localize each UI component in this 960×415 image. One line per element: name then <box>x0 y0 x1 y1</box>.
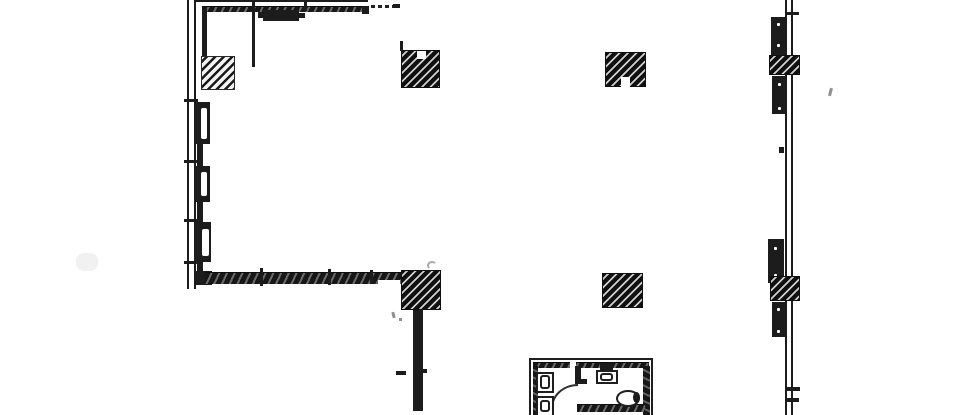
top-wall-dash-end <box>393 4 400 8</box>
sink-basin <box>600 373 613 381</box>
right-pier-3-dot-a <box>774 247 777 250</box>
left-wall-tick-2 <box>184 160 198 163</box>
column-bottom-left <box>401 270 441 310</box>
right-column-1 <box>769 55 800 75</box>
stray-mark-2 <box>399 318 402 321</box>
right-wall-mid-tick <box>779 147 784 153</box>
smudge-left <box>76 253 98 271</box>
lower-wall <box>413 310 423 411</box>
interior-line-v <box>252 0 255 67</box>
right-pier-4-dot-a <box>777 308 780 311</box>
column-top-left-stub <box>400 41 403 51</box>
right-pier-2-dot-b <box>778 107 781 110</box>
curl-mark <box>427 261 437 270</box>
left-wall-column <box>201 56 235 90</box>
window-pier-3-slot <box>202 229 209 256</box>
window-connector-1 <box>197 144 203 167</box>
right-wall-stub-2 <box>787 398 799 402</box>
top-wall-end-corner <box>362 6 369 14</box>
right-pier-1-dot-b <box>777 44 780 47</box>
top-wall-outer-line <box>196 0 368 2</box>
bottom-wall-thin-gap <box>378 280 400 285</box>
right-wall-top-tick <box>785 12 799 15</box>
fixture-1-inner <box>540 375 550 389</box>
bottom-wall-tick-2 <box>328 269 331 285</box>
window-pier-2-slot <box>201 172 207 196</box>
right-pier-2-dot-a <box>778 83 781 86</box>
window-pier-1-slot <box>201 108 207 139</box>
toilet-tank-mark <box>633 392 640 403</box>
bottom-wall-tick-1 <box>260 268 263 286</box>
right-wall-stub-1 <box>787 387 800 391</box>
column-top-left-notch <box>417 51 426 59</box>
lower-wall-tick <box>396 371 406 375</box>
right-column-2 <box>770 276 800 301</box>
top-wall-tick <box>304 0 307 11</box>
fixture-2-inner <box>540 400 550 412</box>
stray-mark-1 <box>391 312 395 319</box>
right-pier-1-dot-a <box>777 23 780 26</box>
door-header-tab-left <box>258 12 263 18</box>
right-pier-4-dot-b <box>777 330 780 333</box>
restroom-band-top <box>533 362 649 368</box>
apostrophe-mark <box>828 88 833 97</box>
column-bottom-mid <box>602 273 643 308</box>
column-top-mid-notch <box>621 77 630 87</box>
lower-wall-nub <box>423 369 427 373</box>
left-inner-top-line <box>202 9 207 57</box>
bottom-wall-tick-3 <box>370 270 373 284</box>
top-wall-dashed-line <box>371 5 395 8</box>
door-header-tab-right <box>299 13 305 18</box>
window-connector-2 <box>197 202 203 223</box>
door-header <box>263 10 299 21</box>
plan-canvas <box>0 0 960 415</box>
